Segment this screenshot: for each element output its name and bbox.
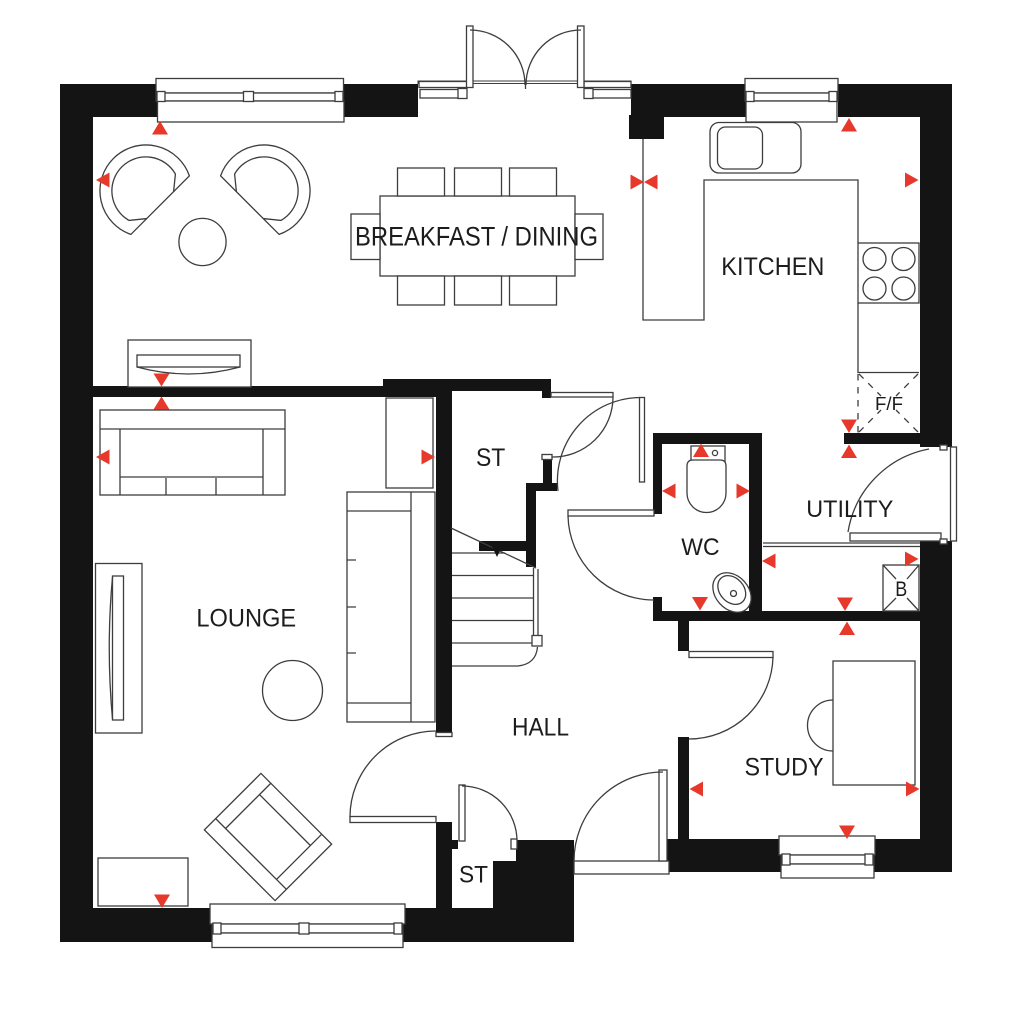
svg-text:ST: ST — [476, 444, 505, 472]
svg-text:HALL: HALL — [512, 715, 569, 742]
svg-text:STUDY: STUDY — [745, 755, 824, 782]
svg-text:WC: WC — [681, 534, 719, 561]
svg-text:B: B — [895, 578, 907, 601]
svg-text:KITCHEN: KITCHEN — [721, 253, 824, 281]
svg-text:ST: ST — [459, 861, 488, 888]
svg-text:BREAKFAST / DINING: BREAKFAST / DINING — [355, 222, 598, 252]
svg-text:UTILITY: UTILITY — [806, 496, 893, 523]
svg-text:F/F: F/F — [875, 393, 903, 414]
svg-text:LOUNGE: LOUNGE — [196, 605, 296, 633]
